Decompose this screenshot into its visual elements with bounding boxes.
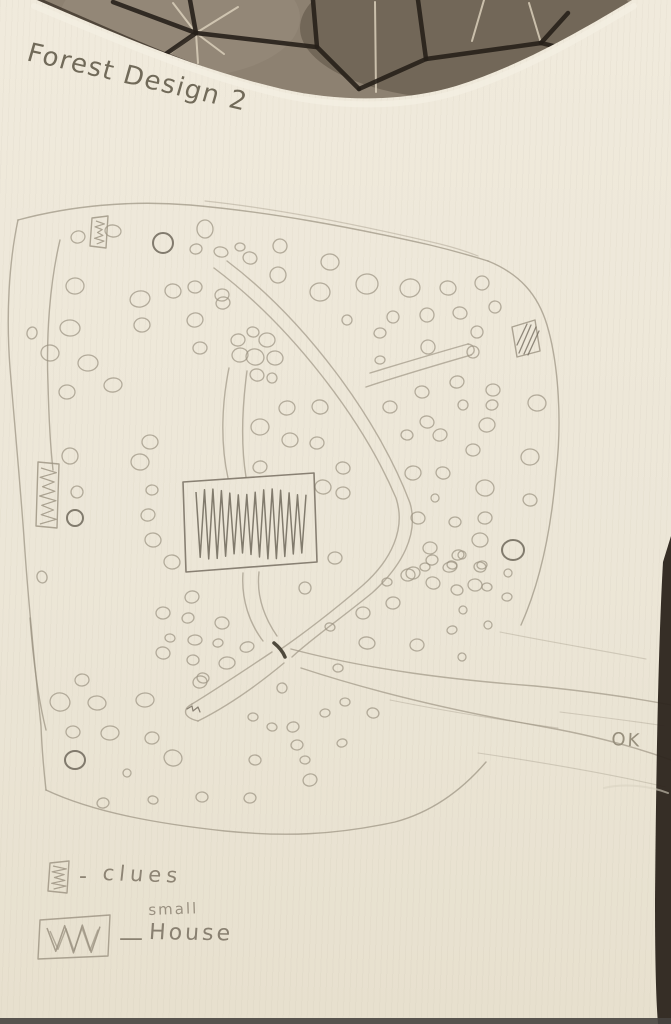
legend-clue-dash: - — [79, 864, 87, 889]
photo-of-hand-drawn-map: Forest Design 2 OK - clues small — House — [0, 0, 671, 1024]
small-house-marker — [36, 462, 59, 528]
legend-house-dash: — — [119, 924, 143, 952]
house-marker — [183, 473, 317, 572]
legend-house-label: House — [148, 920, 234, 946]
clue-box-marker-2 — [512, 320, 540, 357]
legend-clue-label: clues — [101, 861, 183, 888]
map-drawing — [8, 201, 671, 959]
legend-clue-symbol — [48, 861, 69, 893]
legend-house-symbol — [38, 915, 110, 959]
legend-small-label: small — [148, 899, 199, 919]
photo-edges — [0, 536, 671, 1024]
sketch-canvas — [0, 0, 671, 1024]
ok-annotation: OK — [611, 729, 642, 752]
